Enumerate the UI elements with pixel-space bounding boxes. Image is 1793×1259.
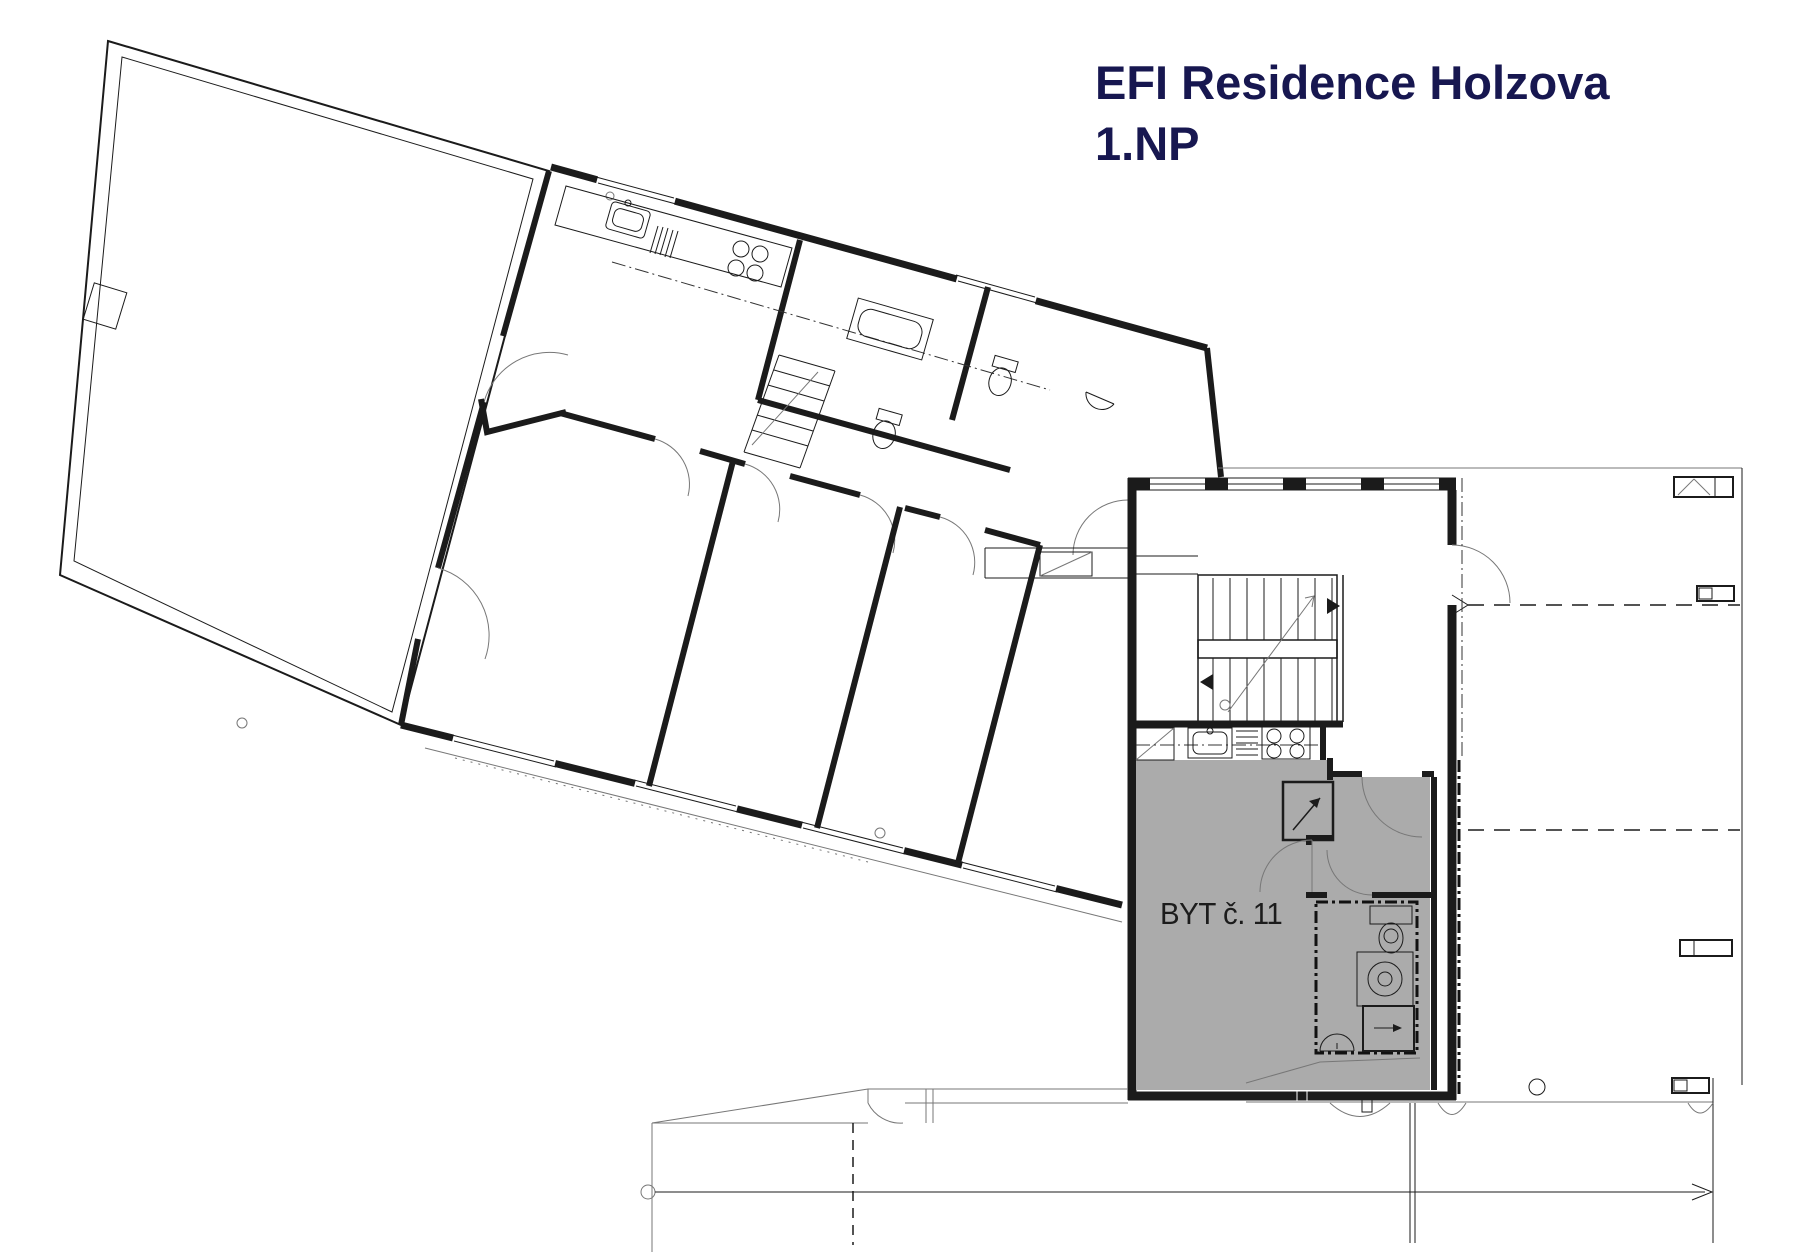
washbasin-icon (1086, 392, 1114, 409)
north-wall (551, 167, 1221, 477)
interior-walls (401, 171, 1128, 863)
right-building (985, 468, 1742, 1103)
floor-plan-page: EFI Residence Holzova 1.NP BYT č. 11 (0, 0, 1793, 1259)
title-line2: 1.NP (1095, 113, 1610, 174)
sink-tap-icon (1207, 728, 1213, 734)
vent-symbol-icon (1674, 477, 1733, 497)
dishwasher-hatch-icon (650, 226, 678, 258)
stair-arrow-icon (1200, 674, 1213, 690)
stairwell (1128, 556, 1343, 724)
page-title: EFI Residence Holzova 1.NP (1095, 52, 1610, 174)
site-area-right (1459, 468, 1742, 1096)
unit-kitchenette (1136, 722, 1323, 760)
stove-icon (728, 241, 768, 281)
vent-symbol-icon (1697, 586, 1734, 601)
vent-symbol-icon (1680, 940, 1732, 956)
large-hall-room (60, 41, 549, 725)
toilet-icon (985, 355, 1019, 398)
toilet-icon (869, 408, 903, 451)
stove-icon (1267, 729, 1304, 758)
stair-arrow-icon (1327, 598, 1340, 614)
entrance-landing (985, 548, 1128, 578)
title-line1: EFI Residence Holzova (1095, 52, 1610, 113)
floor-plan-drawing (0, 0, 1793, 1259)
rotated-building-wing (60, 41, 1221, 922)
stair-direction-line (1228, 596, 1314, 712)
site-area-bottom (641, 1078, 1713, 1252)
bathtub-icon (847, 298, 934, 360)
vent-symbol-icon (1672, 1078, 1709, 1093)
apartment-label: BYT č. 11 (1160, 896, 1282, 932)
dishwasher-hatch-icon (1236, 731, 1258, 755)
